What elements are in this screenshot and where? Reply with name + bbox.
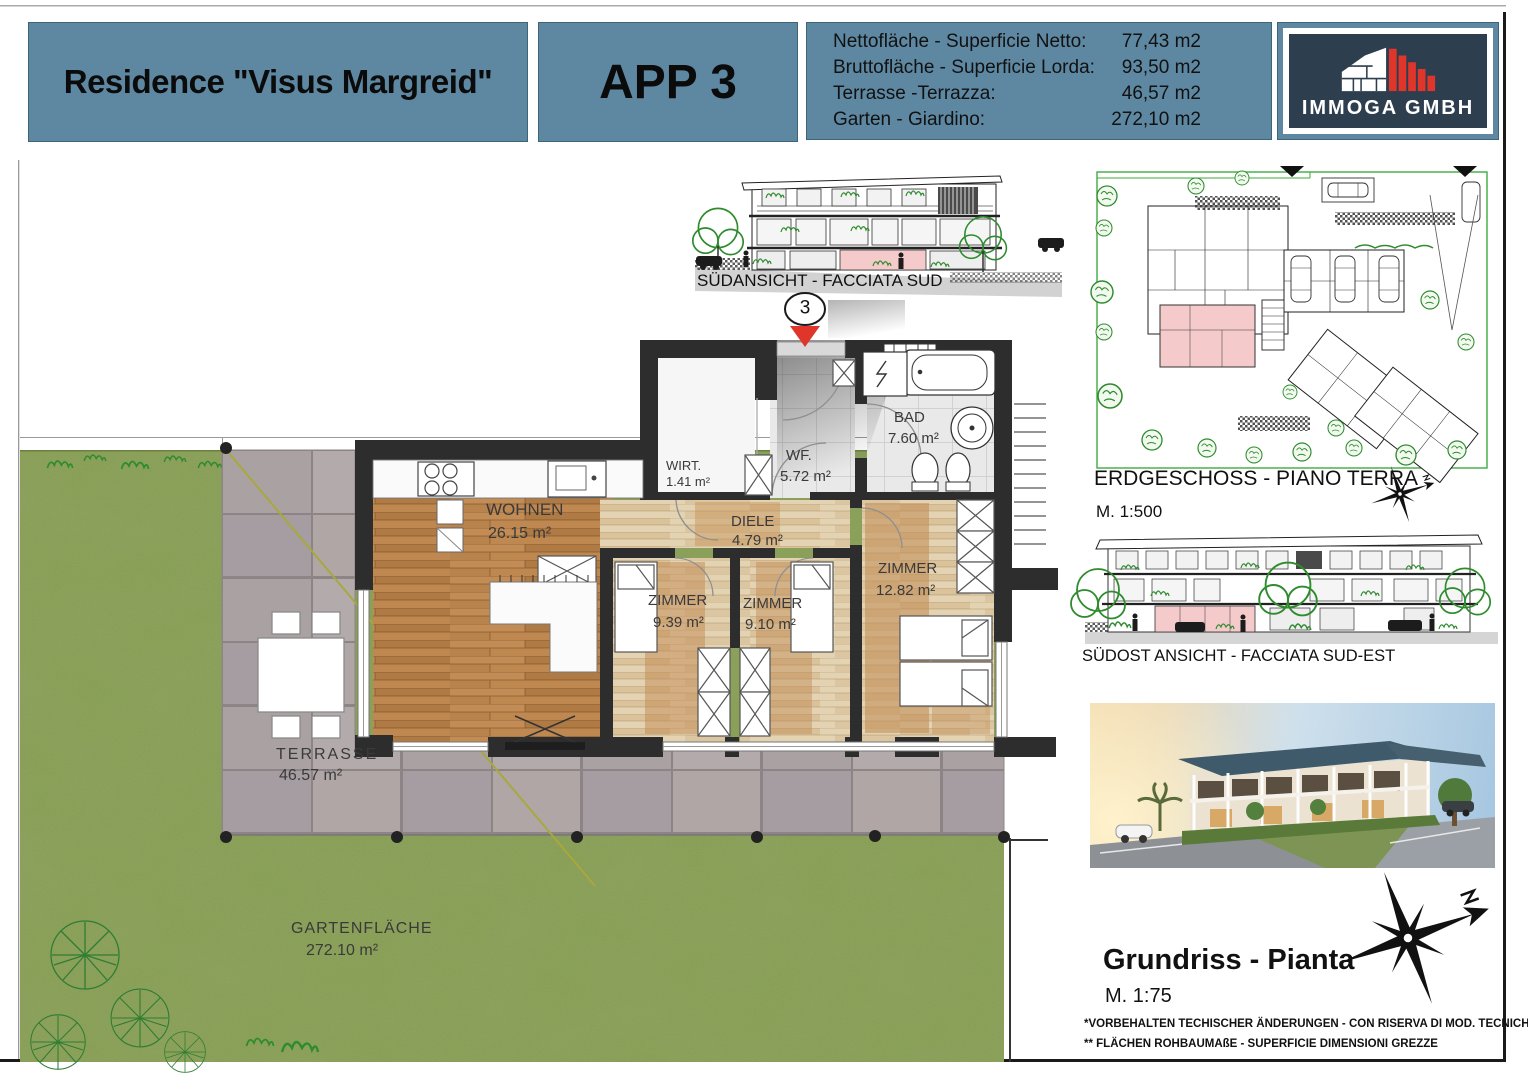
disclaimer-line-1: *VORBEHALTEN TECHISCHER ÄNDERUNGEN - CON… <box>1084 1018 1528 1030</box>
plan-title: Grundriss - Pianta <box>1103 944 1354 977</box>
room-label-wohnen: WOHNEN <box>486 501 563 519</box>
compass-icon <box>1316 843 1512 1029</box>
plan-scale: M. 1:75 <box>1105 985 1172 1008</box>
room-label-wirt: WIRT. <box>666 459 701 473</box>
exterior-stairs <box>1014 404 1046 544</box>
apartment-highlight <box>1160 305 1255 367</box>
plan-sheet: Residence "Visus Margreid" APP 3 Nettofl… <box>0 0 1528 1080</box>
room-area-bad: 7.60 m² <box>888 431 939 447</box>
building-render-image <box>1090 703 1495 868</box>
disclaimer-line-2: ** FLÄCHEN ROHBAUMAßE - SUPERFICIE DIMEN… <box>1084 1038 1438 1050</box>
render-scene <box>1090 703 1495 868</box>
room-area-wf: 5.72 m² <box>780 469 831 485</box>
room-label-zimmer1: ZIMMER <box>648 593 707 609</box>
floor-plan-drawing <box>355 300 1058 757</box>
room-area-zimmer1: 9.39 m² <box>653 615 704 631</box>
southeast-elevation-drawing <box>1071 535 1498 644</box>
site-plan-scale: M. 1:500 <box>1096 502 1162 522</box>
southeast-elevation-caption: SÜDOST ANSICHT - FACCIATA SUD-EST <box>1082 647 1395 666</box>
entrance-marker-number: 3 <box>800 298 811 320</box>
garden-label: GARTENFLÄCHE <box>291 921 433 938</box>
room-area-zimmer3: 12.82 m² <box>876 583 935 599</box>
garden-area-value: 272.10 m² <box>306 943 378 960</box>
room-area-wohnen: 26.15 m² <box>488 526 551 543</box>
room-label-zimmer2: ZIMMER <box>743 596 802 612</box>
site-plan-caption: ERDGESCHOSS - PIANO TERRA <box>1094 467 1418 491</box>
room-area-diele: 4.79 m² <box>732 533 783 549</box>
room-label-zimmer3: ZIMMER <box>878 561 937 577</box>
terrace-area: 46.57 m² <box>279 768 342 785</box>
room-label-diele: DIELE <box>731 514 774 530</box>
room-area-zimmer2: 9.10 m² <box>745 617 796 633</box>
room-label-bad: BAD <box>894 410 925 426</box>
room-label-wf: WF. <box>786 448 812 464</box>
south-elevation-caption: SÜDANSICHT - FACCIATA SUD <box>697 271 943 291</box>
room-area-wirt: 1.41 m² <box>666 475 710 489</box>
apartment-highlight <box>840 250 926 270</box>
terrace-label: TERRASSE <box>276 747 378 764</box>
